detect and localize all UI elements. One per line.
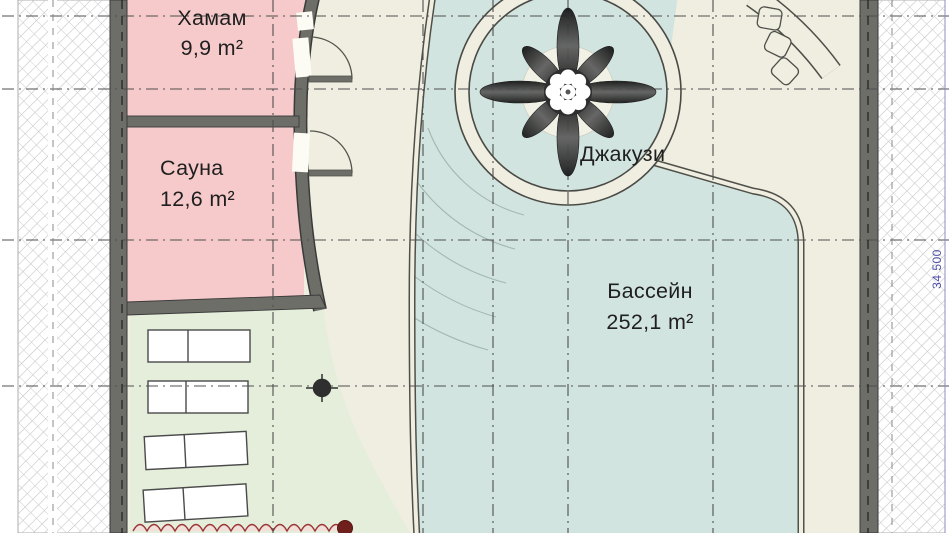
dimension-text: 34 500: [930, 237, 944, 301]
lounger: [144, 431, 248, 469]
red-marker-icon: [338, 521, 353, 533]
hammam-label: Хамам: [152, 8, 272, 30]
jacuzzi-label: Джакузи: [580, 144, 665, 166]
right-wall: [860, 0, 878, 533]
floor-plan-canvas: Хамам 9,9 m² Сауна 12,6 m² Джакузи Бассе…: [0, 0, 951, 533]
sauna-area-label: 12,6 m²: [140, 189, 280, 211]
lounger: [143, 484, 248, 522]
pool-label: Бассейн: [585, 281, 715, 303]
sauna-label: Сауна: [140, 158, 280, 180]
hammam-area-label: 9,9 m²: [152, 38, 272, 60]
sauna-room: [127, 127, 304, 303]
left-insulation-hatch: [18, 0, 110, 533]
lounger: [148, 330, 250, 362]
pool-area-label: 252,1 m²: [585, 312, 715, 334]
floor-plan-drawing: [0, 0, 951, 533]
left-wall: [110, 0, 127, 533]
